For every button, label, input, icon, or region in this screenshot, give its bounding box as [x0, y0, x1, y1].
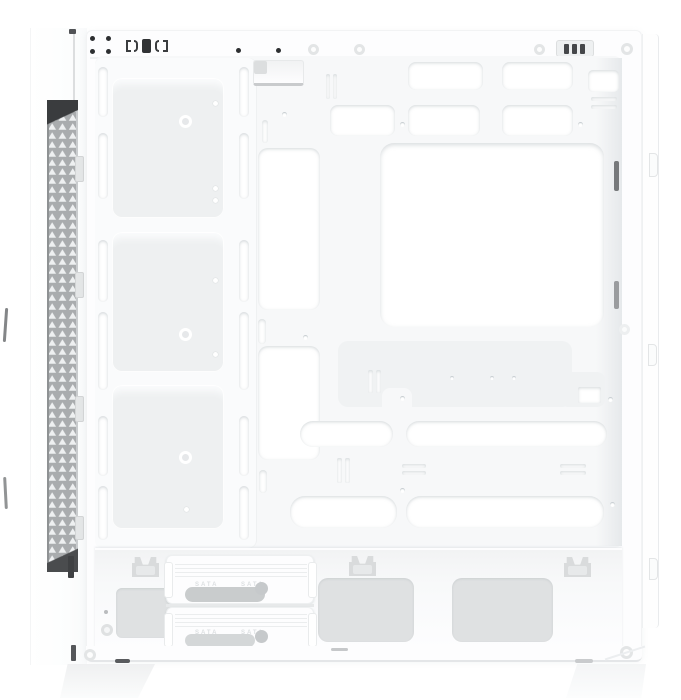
latch-bar-icon [572, 44, 577, 54]
bottom-slot [331, 648, 348, 651]
top-rivet [354, 44, 365, 55]
fan-rail-slot [239, 240, 249, 302]
fan-plate-screw-hole [184, 507, 189, 512]
standoff-hole [608, 397, 613, 402]
fan-rail-slot [98, 67, 108, 117]
shroud-grommet [101, 624, 113, 636]
top-screw [106, 49, 111, 54]
cable-cutout-long [300, 421, 393, 447]
front-vent-cutout [258, 148, 320, 310]
recessed-notch [382, 388, 412, 407]
shroud-clip-inner [136, 566, 155, 575]
io-bracket-right-icon [163, 40, 168, 52]
vent-slot [326, 74, 330, 99]
mesh-clip [75, 156, 84, 182]
vent-slot [368, 370, 373, 393]
shroud-vent [452, 578, 553, 642]
fan-plate-screw-hole [213, 278, 218, 283]
rear-vent-slot [614, 281, 619, 309]
io-paren-icon [134, 40, 138, 52]
drive-tray: SATA SATA [166, 555, 314, 604]
fan-mount-plate [112, 78, 224, 218]
mesh-clip [75, 396, 84, 422]
io-port-block-icon [142, 39, 151, 53]
cable-cutout [502, 62, 573, 90]
standoff-hole [400, 488, 405, 493]
cable-cutout [588, 70, 619, 92]
rear-foot [566, 664, 646, 698]
drive-tray-thumbhole [255, 630, 268, 643]
drive-tray-ridges [175, 614, 307, 628]
top-io-ports [126, 39, 168, 54]
latch-bar-icon [580, 44, 585, 54]
standoff-hole [400, 396, 405, 401]
front-panel-seam-line [73, 34, 75, 104]
top-screw [236, 48, 241, 53]
fan-rail-slot [239, 312, 249, 390]
cable-cutout-long [406, 421, 607, 447]
vent-slot [337, 458, 342, 483]
rear-panel-tab [649, 558, 658, 580]
fan-plate-center-hole [179, 115, 192, 128]
top-screw [90, 49, 95, 54]
fan-mount-plate [112, 385, 224, 529]
cable-cutout [502, 105, 573, 136]
front-bottom-bar [71, 645, 76, 661]
fan-plate-screw-hole [213, 186, 218, 191]
vent-slot [402, 471, 426, 475]
fan-plate-screw-hole [213, 101, 218, 106]
rear-panel [642, 34, 659, 628]
recessed-channel [338, 341, 572, 407]
rear-vent-slot [614, 161, 619, 191]
standoff-hole [490, 376, 494, 380]
fan-mount-plate [112, 232, 224, 372]
bottom-screw [84, 649, 96, 661]
fan-plate-center-hole [179, 328, 192, 341]
mesh-top-shadow [47, 100, 78, 140]
rear-screw [619, 324, 630, 335]
bottom-slot [575, 659, 593, 663]
fan-rail-slot [98, 486, 108, 540]
shroud-clip-inner [568, 566, 587, 575]
standoff-hole [400, 122, 405, 127]
drive-tray-rail [164, 562, 173, 598]
cable-cutout [408, 62, 483, 90]
cpu-cooler-cutout [380, 143, 604, 327]
fan-plate-screw-hole [213, 352, 218, 357]
drive-tray-rail [308, 562, 317, 598]
mesh-clip [75, 272, 84, 298]
vent-slot [333, 74, 337, 99]
front-edge-mark [3, 477, 8, 509]
vent-slot [591, 97, 617, 101]
standoff-hole [578, 122, 583, 127]
pc-case-photo: SATA SATA SATA SATA [0, 0, 681, 700]
io-paren-icon [155, 40, 159, 52]
shroud-dot [104, 610, 108, 614]
fan-plate-screw-hole [213, 198, 218, 203]
vent-slot [262, 120, 268, 143]
io-bracket-left-icon [126, 40, 131, 52]
top-screw [106, 36, 111, 41]
top-rivet [308, 44, 319, 55]
top-screw [90, 36, 95, 41]
standoff-hole [303, 335, 308, 340]
top-latch [556, 40, 594, 57]
shroud-vent [318, 578, 414, 642]
vent-slot [259, 470, 267, 493]
vent-slot [560, 464, 586, 468]
fan-rail-slot [239, 416, 249, 476]
front-bottom-bar [68, 556, 74, 578]
bottom-rail [86, 646, 642, 662]
top-rivet [534, 44, 545, 55]
standoff-hole [512, 376, 516, 380]
drive-tray-rail [308, 613, 317, 647]
fan-rail-slot [98, 312, 108, 390]
drive-tray-opening [185, 587, 265, 602]
fan-rail-slot [239, 486, 249, 540]
fan-rail-slot [239, 133, 249, 199]
front-edge-mark [3, 308, 8, 342]
fan-rail-slot [98, 416, 108, 476]
drive-tray-rail [164, 613, 173, 647]
mesh-clip [75, 516, 84, 540]
standoff-hole [450, 376, 454, 380]
standoff-hole [610, 502, 615, 507]
fan-rail-slot [98, 133, 108, 199]
shroud-clip-inner [353, 565, 372, 574]
fan-rail-slot [98, 240, 108, 302]
drive-tray-ridges [175, 564, 307, 580]
front-foot [60, 664, 155, 698]
vent-slot [258, 319, 266, 344]
tray-top-bracket [253, 60, 304, 86]
vent-slot [345, 458, 350, 483]
vent-slot [591, 105, 617, 109]
bracket-cap [254, 61, 267, 74]
square-cutout [578, 387, 601, 403]
fan-rail-slot [239, 67, 249, 117]
cable-cutout [330, 105, 395, 136]
rear-panel-tab [649, 153, 658, 177]
vent-slot [560, 471, 586, 475]
fan-plate-center-hole [179, 451, 192, 464]
rear-panel-tab [648, 344, 657, 366]
cable-cutout [408, 105, 480, 136]
top-screw [276, 48, 281, 53]
rear-screw [621, 43, 633, 55]
bottom-slot [115, 659, 130, 663]
cable-cutout-long [406, 496, 604, 528]
latch-bar-icon [564, 44, 569, 54]
cable-cutout-long [290, 496, 397, 528]
standoff-hole [282, 112, 287, 117]
vent-slot [402, 464, 426, 468]
front-mesh-strip [47, 104, 78, 566]
drive-tray-thumbhole [255, 582, 268, 595]
vent-slot [376, 370, 381, 393]
